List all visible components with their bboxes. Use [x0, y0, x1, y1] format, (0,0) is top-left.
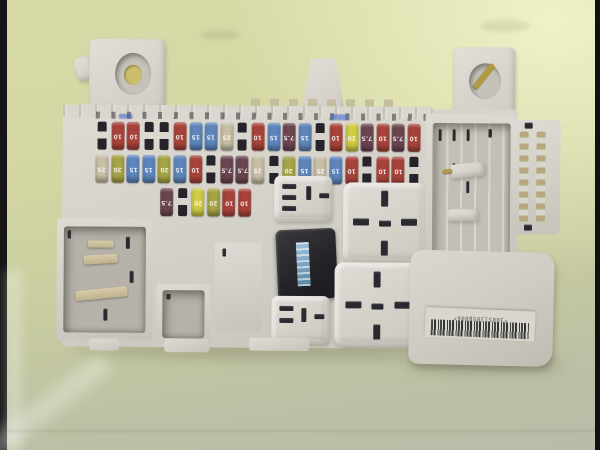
- pin: [467, 129, 470, 141]
- ink-marking: [119, 114, 133, 119]
- pin: [68, 230, 71, 238]
- fuse-row-1: 10101015152510157.51510207.5107.510: [96, 122, 424, 152]
- terminal-slot: [130, 271, 134, 283]
- mount-hole-core: [124, 65, 142, 85]
- fuse-maroon-7.5a: 7.5: [361, 123, 374, 151]
- ink-marking: [331, 114, 348, 120]
- fuse-slot-empty: [178, 188, 187, 216]
- fuse-red-10a: 10: [251, 123, 264, 151]
- fuse-slot-empty: [206, 155, 215, 183]
- fuse-tan-25a: 25: [251, 156, 264, 184]
- mount-bracket-top-left: [89, 39, 166, 112]
- pin: [223, 248, 226, 256]
- fuse-maroon-7.5a: 7.5: [236, 156, 249, 184]
- terminal-slot: [381, 241, 388, 256]
- fuse-maroon-7.5a: 7.5: [283, 123, 296, 151]
- fuse-box-unit: 10101015152510157.51510207.5107.510 2520…: [0, 0, 600, 450]
- terminal-slot: [353, 218, 369, 225]
- photo-fuse-box: 10101015152510157.51510207.5107.510 2520…: [0, 0, 600, 450]
- contact-column: [519, 132, 529, 222]
- latch-component: [450, 162, 485, 179]
- small-connector-cavity: [162, 290, 204, 338]
- fuse-red-10a: 10: [392, 157, 405, 185]
- fuse-red-10a: 10: [189, 155, 202, 183]
- terminal-slot: [401, 219, 417, 226]
- fuse-slot-empty: [362, 156, 371, 184]
- fuse-slot-empty: [160, 122, 169, 150]
- fuse-row-3: 7.520201010: [160, 188, 254, 217]
- terminal-slot: [301, 308, 306, 322]
- contact-column: [536, 132, 546, 222]
- fuse-blue-15a: 15: [126, 155, 139, 183]
- pin-grid: [488, 129, 505, 229]
- bottom-tab: [249, 338, 309, 351]
- terminal-slot: [306, 186, 311, 200]
- terminal-slot: [314, 314, 324, 319]
- fuse-red-10a: 10: [329, 123, 342, 151]
- fuse-maroon-7.5a: 7.5: [220, 155, 233, 183]
- fuse-blue-15a: 15: [205, 122, 218, 150]
- fuse-red-10a: 10: [222, 188, 235, 216]
- fuse-blue-15a: 15: [267, 123, 280, 151]
- relay-black: [275, 228, 338, 301]
- terminal-slot: [379, 221, 391, 227]
- fuse-olive-20a: 20: [158, 155, 171, 183]
- fuse-slot-empty: [409, 157, 418, 185]
- terminal-slot: [524, 225, 532, 231]
- right-connector-cavity: [432, 123, 511, 262]
- fuse-slot-empty: [98, 122, 107, 150]
- fuse-blue-15a: 15: [189, 122, 202, 150]
- fuse-slot-empty: [144, 122, 153, 150]
- relay-blue-label: [296, 242, 311, 287]
- fuse-tan-25a: 25: [220, 122, 233, 150]
- fuse-blue-15a: 15: [142, 155, 155, 183]
- relay-socket-small-top: [274, 176, 332, 222]
- pin-strip-connector: [214, 242, 262, 330]
- fuse-red-10a: 10: [127, 122, 140, 150]
- fuse-maroon-7.5a: 7.5: [392, 124, 405, 152]
- terminal-slot: [319, 193, 329, 198]
- terminal-slot: [279, 318, 293, 323]
- fuse-red-10a: 10: [407, 124, 420, 152]
- relay-socket-large-1: [343, 182, 428, 263]
- bottom-tab: [89, 339, 119, 351]
- photo-black-edge-right: [595, 0, 600, 450]
- fuse-yellow-20a: 20: [191, 188, 204, 216]
- terminal-slot: [126, 237, 130, 249]
- blade-terminal: [84, 254, 118, 265]
- fuse-olive-20a: 20: [111, 155, 124, 183]
- left-connector-cavity: [63, 226, 146, 333]
- fuse-blue-15a: 15: [173, 155, 186, 183]
- terminal-slot: [394, 302, 410, 309]
- terminal-slot: [282, 195, 296, 200]
- fuse-yellow-20a: 20: [345, 123, 358, 151]
- fuse-red-10a: 10: [111, 122, 124, 150]
- fuse-slot-empty: [238, 123, 247, 151]
- fuse-red-10a: 10: [173, 122, 186, 150]
- terminal-slot: [282, 184, 296, 189]
- pin-grid: [166, 294, 200, 334]
- bottom-tab: [164, 339, 209, 352]
- side-connector: [512, 119, 561, 234]
- pin: [166, 294, 170, 299]
- fuse-row-2: 252015152015107.57.52520152515101010: [95, 155, 423, 185]
- latch-component: [448, 209, 478, 221]
- brass-pin: [442, 169, 452, 174]
- pin-grid: [222, 248, 251, 324]
- fuse-red-10a: 10: [376, 124, 389, 152]
- blade-terminal: [75, 286, 128, 301]
- fuse-olive-20a: 20: [207, 188, 220, 216]
- mount-bracket-top-right: [453, 47, 515, 117]
- fuse-tan-25a: 25: [95, 155, 108, 183]
- blade-terminal: [88, 241, 114, 248]
- fuse-blue-15a: 15: [298, 123, 311, 151]
- pin: [453, 129, 456, 141]
- terminal-slot: [371, 304, 383, 310]
- fuse-red-10a: 10: [238, 189, 251, 217]
- pin-column: [67, 230, 76, 326]
- fuse-red-10a: 10: [376, 157, 389, 185]
- fuse-maroon-7.5a: 7.5: [160, 188, 173, 216]
- terminal-slot: [279, 306, 293, 311]
- barcode-label: *30851305B806*: [424, 307, 535, 342]
- pin: [489, 129, 492, 137]
- terminal-slot: [374, 272, 381, 288]
- pin: [466, 181, 469, 193]
- terminal-slot: [525, 123, 533, 129]
- terminal-slot: [373, 325, 380, 340]
- terminal-slot: [345, 301, 361, 308]
- fuse-red-10a: 10: [345, 156, 358, 184]
- terminal-slot: [381, 191, 388, 207]
- terminal-slot: [282, 206, 296, 211]
- pin: [439, 129, 442, 141]
- module-cover: *30851305B806*: [408, 250, 555, 367]
- fuse-slot-empty: [316, 123, 325, 151]
- terminal-slot: [103, 309, 107, 321]
